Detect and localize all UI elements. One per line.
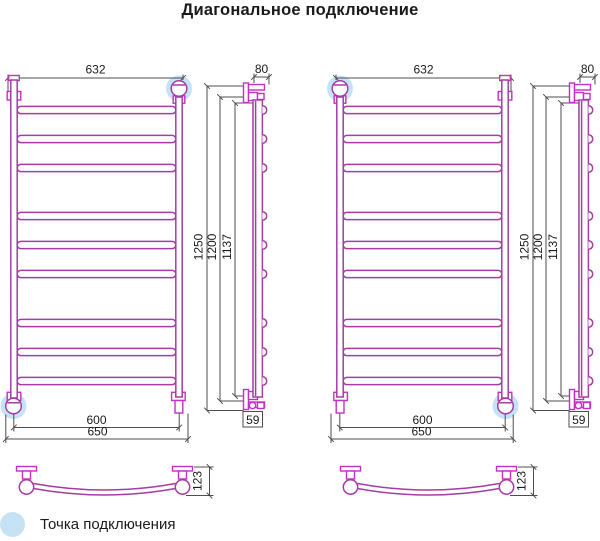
dim-depth-bottom: 59 — [246, 413, 260, 427]
dim-width-overall: 650 — [87, 425, 107, 439]
dim-height-overall: 1250 — [518, 233, 532, 260]
dim-arc-depth: 123 — [515, 471, 529, 491]
connection-point-icon — [0, 512, 25, 537]
dim-height-inner: 1137 — [546, 234, 560, 260]
dim-height-axes: 1200 — [205, 233, 219, 260]
technical-drawing: 632 80 1250 1200 1137 600 650 59 123 632… — [0, 0, 600, 541]
dim-depth-top: 80 — [255, 62, 269, 76]
drawing-canvas: Диагональное подключение — [0, 0, 600, 541]
bottom-arc-view-1 — [17, 467, 214, 496]
front-view-2 — [327, 75, 519, 444]
dim-height-inner: 1137 — [220, 234, 234, 260]
front-view-1 — [1, 75, 193, 444]
dim-width-overall: 650 — [411, 425, 431, 439]
legend-label: Точка подключения — [40, 516, 175, 533]
diagram-variant-1: 632 80 1250 1200 1137 600 650 59 123 — [1, 62, 270, 496]
dim-arc-depth: 123 — [191, 471, 205, 491]
dim-width-top: 632 — [85, 63, 105, 77]
dim-height-overall: 1250 — [192, 233, 206, 260]
dim-width-top: 632 — [413, 63, 433, 77]
bottom-arc-view-2 — [341, 467, 538, 496]
dim-height-axes: 1200 — [531, 233, 545, 260]
dim-depth-bottom: 59 — [572, 413, 586, 427]
legend: Точка подключения — [0, 512, 175, 537]
dim-depth-top: 80 — [581, 62, 595, 76]
diagram-variant-2: 632 80 1250 1200 1137 600 650 59 123 — [327, 62, 595, 496]
